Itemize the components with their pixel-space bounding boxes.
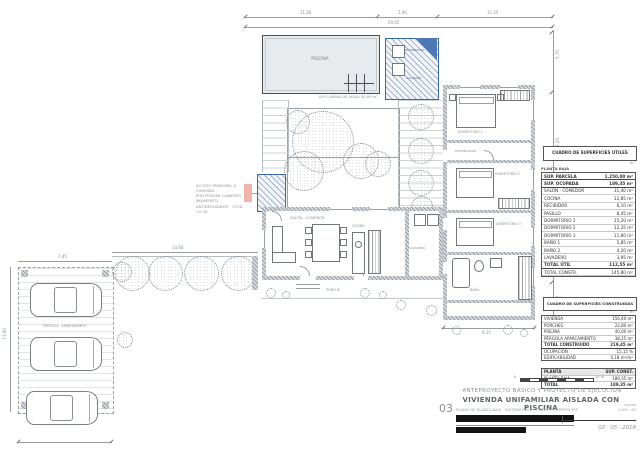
toilet-symbol	[474, 260, 484, 272]
tree-symbol	[286, 110, 310, 134]
window-line	[533, 268, 534, 286]
sink-symbol	[355, 241, 362, 248]
dimension-line-top	[245, 17, 553, 18]
row-name: BAÑO 2	[544, 248, 560, 253]
shrub-symbol	[396, 300, 406, 310]
row-name: TOTAL ÚTIL	[544, 262, 571, 267]
row-name: PORCHES	[544, 323, 563, 328]
west-deck-slats	[262, 100, 289, 172]
step-line	[296, 284, 320, 285]
interior-wall	[447, 300, 531, 303]
scale-bar-zero: 0	[514, 376, 516, 380]
row-name: EDIFICABILIDAD	[544, 355, 576, 360]
equipment-label: DEPURADORA	[405, 48, 425, 52]
car-symbol	[26, 391, 98, 425]
shrub-symbol	[379, 291, 387, 299]
scale-bar-end: 10 m	[595, 376, 604, 380]
row-value: 12,35 m²	[614, 225, 633, 230]
pool	[262, 35, 380, 94]
window-line	[533, 228, 534, 246]
tree-symbol	[221, 256, 256, 291]
row-value: 38,25 m²	[615, 336, 633, 341]
window-line	[264, 230, 265, 248]
chair-symbol	[340, 239, 347, 246]
drawing-date: 02 · 05 · 2016	[588, 425, 636, 431]
dim-label-parking-w: 7,45	[58, 255, 67, 259]
dim-tick	[550, 14, 554, 18]
interior-wall	[405, 211, 409, 276]
row-value: 11,60 m²	[614, 233, 633, 238]
dimension-line-wing	[443, 328, 535, 329]
chair-symbol	[340, 251, 347, 258]
kitchen-counter	[352, 232, 365, 274]
door-gap	[300, 276, 316, 280]
pergola-post	[21, 270, 28, 277]
dim-label-right-1: 5,70	[556, 50, 560, 59]
shrub-symbol	[503, 325, 513, 335]
pool-steps-line	[348, 74, 349, 92]
project-phase: ANTEPROYECTO BÁSICO Y PROYECTO DE EJECUC…	[452, 388, 632, 394]
tree-symbol	[148, 256, 183, 291]
step-line	[296, 288, 320, 289]
sofa-symbol	[272, 226, 283, 254]
porch-pier	[252, 256, 258, 290]
scale-bar	[520, 378, 594, 382]
door-gap	[443, 262, 447, 274]
row-name: TOTAL CONSTR.	[544, 270, 577, 275]
living-label: SALÓN - COMEDOR	[290, 216, 325, 220]
useful-table-title: CUADRO DE SUPERFICIES ÚTILES	[543, 146, 637, 161]
row-name: SUP. PARCELA	[544, 174, 577, 179]
row-value: 145,80 m²	[611, 270, 633, 275]
kitchen-counter-striped	[368, 230, 381, 274]
tree-symbol	[117, 332, 133, 348]
pool-equipment-box	[392, 63, 405, 76]
washbasin-symbol	[490, 258, 502, 268]
parking-dim-bottom	[18, 442, 112, 443]
row-name: OCUPACIÓN	[544, 349, 568, 354]
window-line	[533, 100, 534, 120]
row-name: BAÑO 1	[544, 240, 560, 245]
window-line	[370, 209, 388, 210]
scale-caption: escala	[604, 403, 636, 407]
row-value: 1.250,00 m²	[605, 174, 633, 179]
path-dimension-line	[112, 252, 258, 253]
closet-symbol	[518, 256, 532, 300]
washer-symbol	[414, 214, 426, 226]
entry-note-line: ACCESO PRINCIPAL A VIVIENDA	[196, 183, 244, 193]
row-value: 12,85 m²	[614, 196, 633, 201]
row-value: 22,80 m²	[615, 323, 633, 328]
row-value: 189,35 m²	[612, 376, 633, 381]
shrub-symbol	[282, 291, 290, 299]
tree-symbol	[408, 170, 434, 196]
tree-symbol	[184, 256, 219, 291]
dim-label-top-total: 29,05	[388, 21, 399, 25]
bed-symbol	[456, 94, 496, 128]
sheet-subtitle: PLANO DE PLANTA BAJA · DISTRIBUCIÓN · CO…	[456, 407, 596, 412]
parking-dim-top	[18, 261, 112, 262]
row-value: 189,35 m²	[610, 382, 633, 387]
nightstand-symbol	[449, 94, 456, 101]
interior-wall	[447, 210, 531, 213]
drawing-sheet: 11,60 5,90 11,55 29,05 PISCINA SUP. LÁMI…	[0, 0, 640, 453]
dim-tick	[109, 439, 113, 443]
entry-note: ACCESO PRINCIPAL A VIVIENDA POR PORCHE C…	[196, 183, 244, 214]
row-name: SUP. OCUPADA	[544, 181, 578, 186]
solarium-label: SOLARIUM	[406, 76, 421, 80]
sheet-number: 03	[439, 402, 453, 415]
dim-label-top-mid: 5,90	[398, 11, 407, 15]
scale-value: 1/100 · A3	[604, 408, 636, 412]
row-name: PLANTA	[544, 369, 561, 374]
row-name: VIVIENDA	[544, 316, 563, 321]
tree-symbol	[408, 138, 434, 164]
bathtub-symbol	[452, 258, 470, 288]
row-value: 189,35 m²	[609, 181, 633, 186]
chair-symbol	[305, 251, 312, 258]
shrub-symbol	[520, 329, 528, 337]
row-value: 15,20 m²	[614, 218, 633, 223]
row-name: TOTAL	[544, 382, 558, 387]
row-value: 15,15 %	[616, 349, 633, 354]
row-value: 4,20 m²	[617, 248, 633, 253]
window-line	[330, 209, 352, 210]
car-symbol	[30, 283, 102, 317]
window-line	[460, 87, 480, 88]
interior-wall	[447, 140, 531, 143]
terrace-edge-line	[262, 298, 443, 299]
chair-symbol	[340, 227, 347, 234]
hall-label: DISTRIBUIDOR	[455, 149, 476, 153]
shrub-symbol	[360, 288, 370, 298]
signature-line	[564, 420, 636, 421]
row-name: PASILLO	[544, 211, 561, 216]
built-table-title: CUADRO DE SUPERFICIES CONSTRUIDAS	[543, 297, 637, 311]
car-symbol	[30, 337, 102, 371]
door-gap	[443, 218, 447, 230]
useful-table-floor: PLANTA BAJA	[541, 167, 569, 171]
interior-wall	[447, 252, 531, 255]
window-line	[500, 87, 518, 88]
row-value: 31,40 m²	[614, 188, 633, 193]
shrub-symbol	[426, 305, 437, 316]
kitchen-label: COCINA	[352, 224, 364, 228]
note-highlight	[244, 184, 252, 202]
dim-label-wing: 9,15	[482, 331, 491, 335]
parking-label: PÉRGOLA · APARCAMIENTO	[34, 324, 96, 328]
dim-label-parking-h: 13,90	[3, 328, 7, 339]
title-block-line	[456, 425, 574, 426]
porch-label: PORCHE	[326, 288, 340, 292]
row-value: 3,95 m²	[617, 255, 633, 260]
row-name: DORMITORIO 1	[544, 218, 576, 223]
pool-steps-line	[364, 74, 365, 92]
door-gap	[443, 150, 447, 162]
row-name: SALÓN - COMEDOR	[544, 188, 584, 193]
row-name: RECIBIDOR	[544, 203, 567, 208]
row-value: SUP. CONST.	[606, 369, 633, 374]
built-table-unit: m²	[543, 310, 635, 314]
tree-symbol	[284, 151, 324, 191]
redacted-bar	[456, 427, 526, 433]
interior-wall	[447, 160, 531, 163]
row-name: TOTAL CONSTRUIDO	[544, 342, 589, 347]
pergola-post	[102, 270, 109, 277]
sofa-symbol	[272, 252, 296, 263]
pergola-post	[102, 402, 109, 409]
row-value: 0,18 m²/m²	[610, 355, 633, 360]
closet-symbol	[500, 90, 530, 101]
pool-label: PISCINA	[262, 58, 378, 62]
washer-symbol	[427, 214, 439, 226]
bedroom3-label: DORMITORIO 3	[496, 222, 521, 226]
row-name: PÉRGOLA APARCAMIENTO	[544, 336, 596, 341]
parking-dim-left	[10, 267, 11, 412]
bath-label: BAÑO	[470, 288, 480, 292]
row-value: 8,45 m²	[617, 211, 633, 216]
shrub-symbol	[266, 288, 276, 298]
chair-symbol	[305, 227, 312, 234]
useful-areas-table: SUP. PARCELA1.250,00 m² SUP. OCUPADA189,…	[541, 172, 636, 277]
pool-steps-line	[356, 74, 357, 92]
built-areas-table: VIVIENDA156,40 m² PORCHES22,80 m² PISCIN…	[541, 315, 636, 361]
row-name: LAVADERO	[544, 255, 567, 260]
door-gap	[354, 276, 368, 280]
dim-tick	[532, 325, 536, 329]
signature-tick	[562, 416, 563, 423]
dining-table-symbol	[312, 224, 340, 262]
tree-symbol	[408, 104, 434, 130]
pool-equipment-box	[392, 45, 405, 58]
row-value: 40,00 m²	[615, 329, 633, 334]
note-leader-line	[252, 193, 257, 194]
dim-label-top-right: 11,55	[487, 11, 498, 15]
bed-symbol	[456, 218, 494, 246]
bedroom1-label: DORMITORIO 1	[458, 130, 483, 134]
dim-label-top-left: 11,60	[300, 11, 311, 15]
laundry-label: LAVADERO	[409, 246, 425, 250]
tree-symbol	[112, 262, 132, 282]
row-value: 219,45 m²	[610, 342, 633, 347]
entry-note-line: PAVIMENTO ANTIDESLIZANTE · COTA +0,45	[196, 198, 244, 213]
row-value: 6,10 m²	[617, 203, 633, 208]
closet-symbol	[498, 198, 530, 209]
row-value: 156,40 m²	[612, 316, 633, 321]
window-line	[533, 170, 534, 190]
dimension-line-top-total	[245, 27, 553, 28]
row-name: PISCINA	[544, 329, 560, 334]
row-value: 112,55 m²	[609, 262, 633, 267]
chair-symbol	[305, 239, 312, 246]
dim-label-path: 14,60	[172, 246, 183, 250]
bed-symbol	[456, 168, 494, 198]
row-value: 5,85 m²	[617, 240, 633, 245]
bedroom2-label: DORMITORIO 2	[495, 172, 520, 176]
row-name: DORMITORIO 3	[544, 233, 576, 238]
redacted-bar	[456, 415, 574, 422]
row-name: COCINA	[544, 196, 560, 201]
dim-tick	[550, 24, 554, 28]
tree-symbol	[365, 151, 391, 177]
row-name: DORMITORIO 2	[544, 225, 576, 230]
scale-bar-mid: 5	[554, 376, 556, 380]
useful-table-unit: m²	[543, 161, 635, 165]
